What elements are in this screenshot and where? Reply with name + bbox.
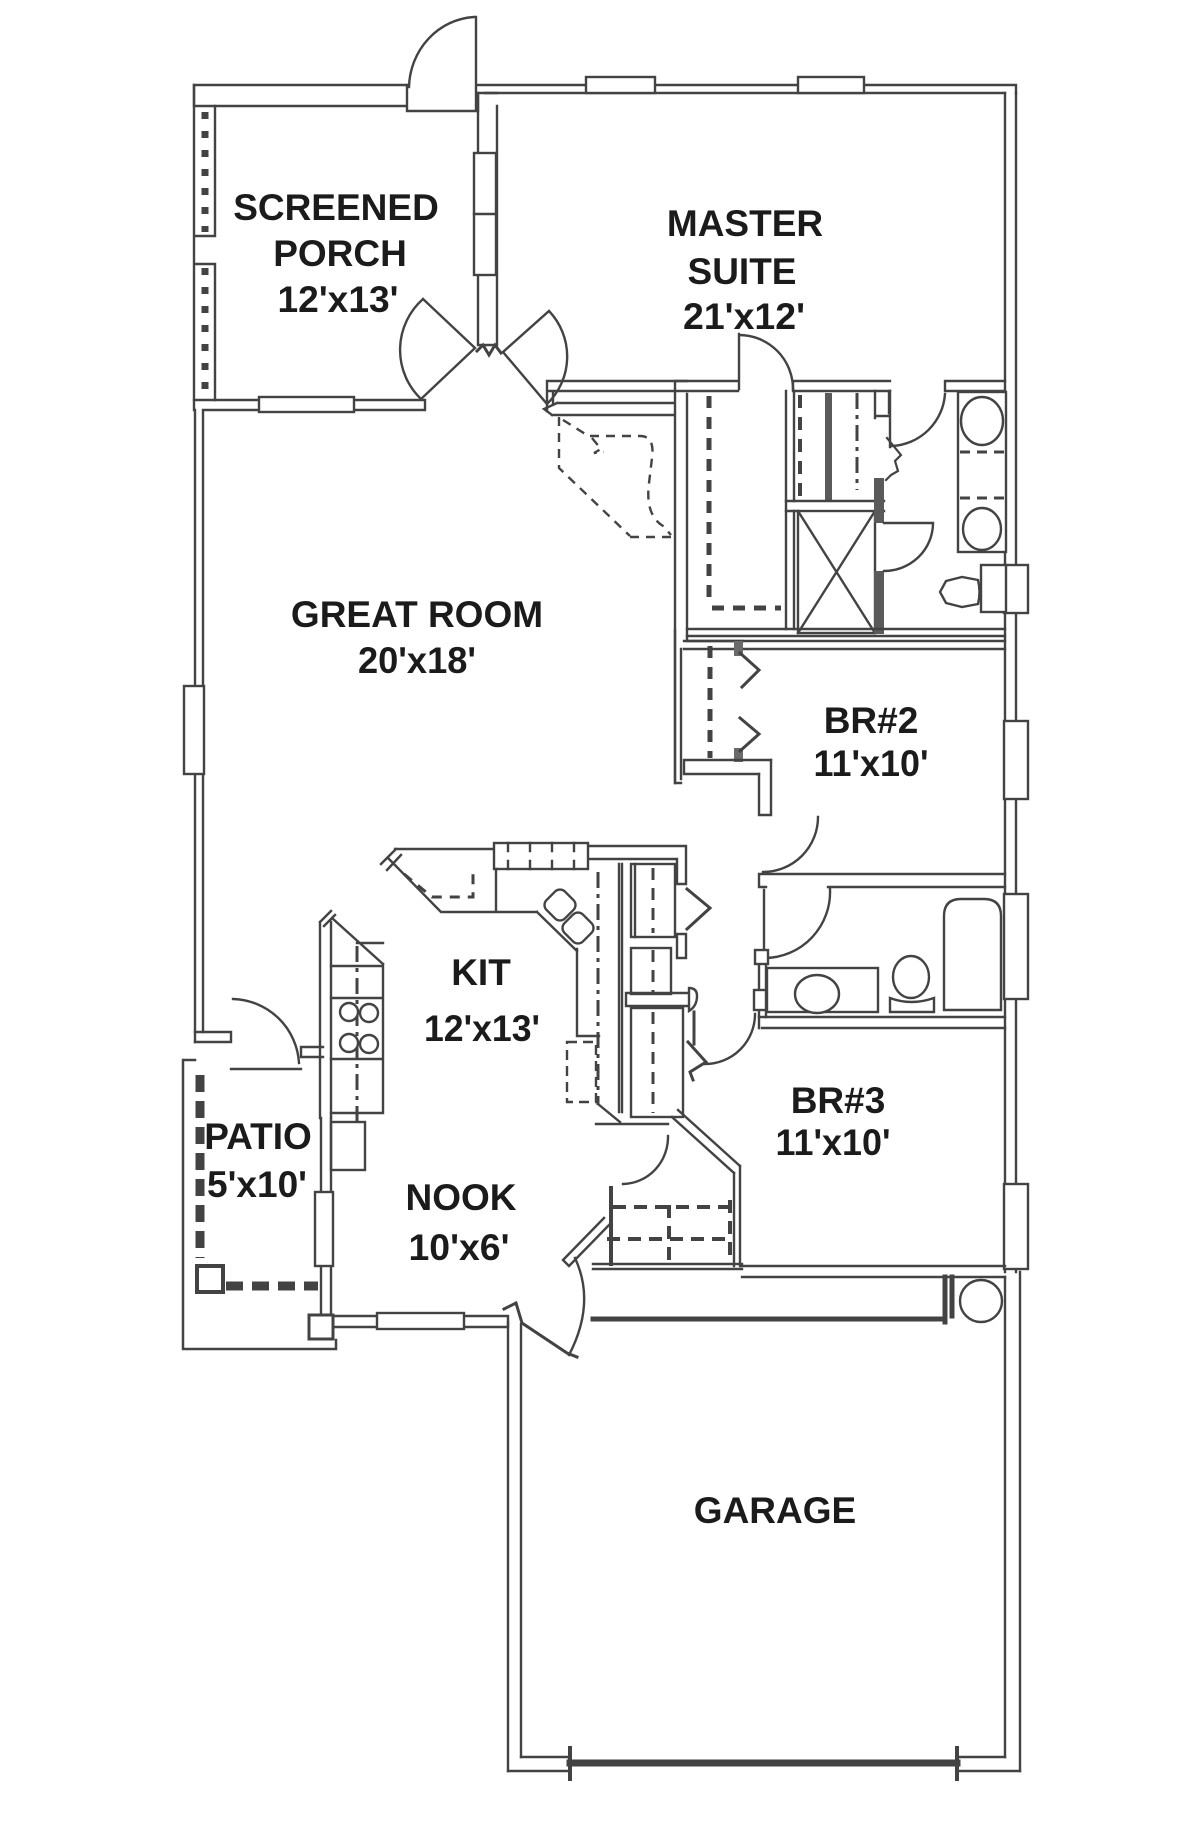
svg-text:NOOK: NOOK (406, 1177, 517, 1218)
svg-text:PORCH: PORCH (273, 233, 407, 274)
svg-text:GREAT ROOM: GREAT ROOM (291, 594, 543, 635)
svg-text:KIT: KIT (451, 952, 511, 993)
svg-text:BR#3: BR#3 (791, 1080, 886, 1121)
svg-text:21'x12': 21'x12' (683, 296, 805, 337)
svg-text:BR#2: BR#2 (824, 700, 919, 741)
svg-text:SUITE: SUITE (688, 251, 797, 292)
svg-text:12'x13': 12'x13' (424, 1008, 540, 1049)
svg-text:5'x10': 5'x10' (207, 1164, 307, 1205)
svg-text:MASTER: MASTER (667, 203, 823, 244)
svg-text:PATIO: PATIO (204, 1116, 312, 1157)
svg-text:20'x18': 20'x18' (358, 640, 476, 681)
svg-text:GARAGE: GARAGE (694, 1490, 856, 1531)
svg-text:10'x6': 10'x6' (409, 1227, 510, 1268)
svg-text:SCREENED: SCREENED (233, 187, 439, 228)
svg-text:11'x10': 11'x10' (776, 1122, 891, 1163)
svg-text:11'x10': 11'x10' (814, 743, 929, 784)
svg-text:12'x13': 12'x13' (278, 279, 399, 320)
